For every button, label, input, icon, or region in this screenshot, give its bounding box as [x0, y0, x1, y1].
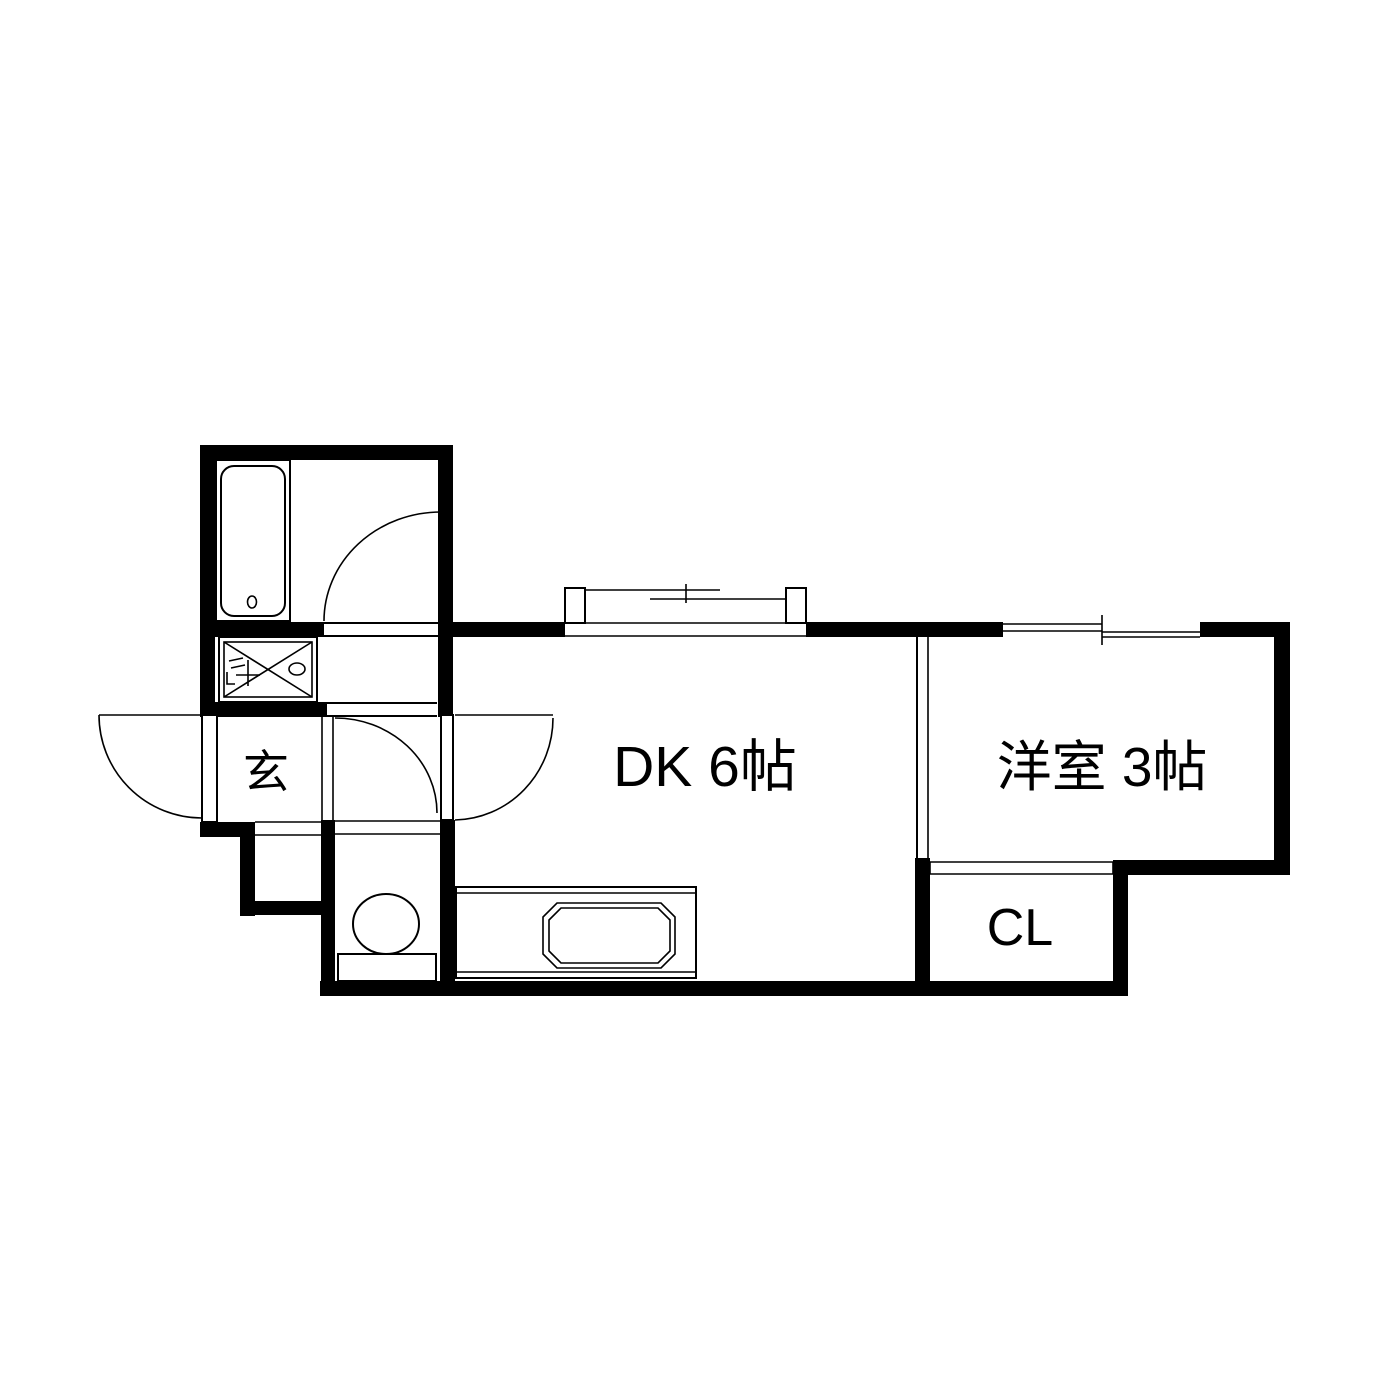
toilet-icon [338, 894, 436, 981]
wall-segment [806, 622, 1003, 637]
wall-segment [240, 901, 335, 915]
wall-segment [1274, 622, 1290, 875]
bathroom-door [324, 512, 441, 636]
toilet-bowl [353, 894, 419, 954]
wall-segment [200, 622, 324, 637]
closet-sliding-door-icon [930, 862, 1113, 874]
entrance-label: 玄 [243, 746, 289, 798]
western-room [1003, 615, 1200, 645]
bathtub-drain [248, 596, 257, 608]
washing-machine-pan-icon [219, 637, 317, 702]
wall-segment [321, 820, 335, 996]
alcove-threshold [255, 822, 321, 835]
door-swing-icon [324, 512, 441, 621]
door-jamb [441, 715, 453, 820]
door-swing-icon [335, 718, 437, 813]
floor-plan: 玄 DK 6帖 洋室 3帖 CL [0, 0, 1400, 1400]
pan-drain [289, 663, 305, 675]
window-post [786, 588, 806, 623]
sliding-door-icon [917, 637, 928, 858]
wall-segment [915, 858, 930, 996]
counter-outline [456, 887, 696, 978]
bathroom [216, 460, 441, 636]
kitchen-sink-inner [549, 908, 670, 963]
hall-inner-door [322, 717, 437, 820]
sliding-window-icon [1003, 615, 1200, 645]
toilet-doorway [335, 821, 440, 834]
toilet-tank [338, 954, 436, 981]
kitchen-sink-icon [543, 903, 675, 968]
wall-segment [1113, 860, 1128, 996]
floor-plan-drawing: 玄 DK 6帖 洋室 3帖 CL [0, 0, 1400, 1400]
wall-segment [320, 981, 1128, 996]
wall-segment [1113, 860, 1290, 875]
wall-segment [200, 445, 453, 460]
dk-doorway [441, 715, 553, 820]
dk-label: DK 6帖 [613, 735, 797, 799]
wall-segment [200, 445, 215, 717]
kitchen-counter-icon [456, 887, 696, 978]
closet-label: CL [987, 899, 1053, 957]
window-post [565, 588, 585, 623]
bathtub-inner [221, 466, 285, 616]
door-jamb [202, 715, 217, 822]
western-room-label: 洋室 3帖 [997, 736, 1208, 798]
door-swing-icon [455, 718, 553, 820]
walls [200, 445, 1290, 996]
bay-window-icon [565, 584, 806, 636]
toilet-room [335, 821, 440, 981]
washroom-doorway [327, 703, 437, 716]
wall-segment [200, 702, 327, 717]
bathtub-icon [216, 460, 290, 621]
door-swing-icon [99, 715, 202, 818]
wall-segment [453, 622, 565, 637]
closet [930, 862, 1113, 874]
wall-segment [440, 820, 455, 996]
entrance-door [99, 715, 217, 822]
